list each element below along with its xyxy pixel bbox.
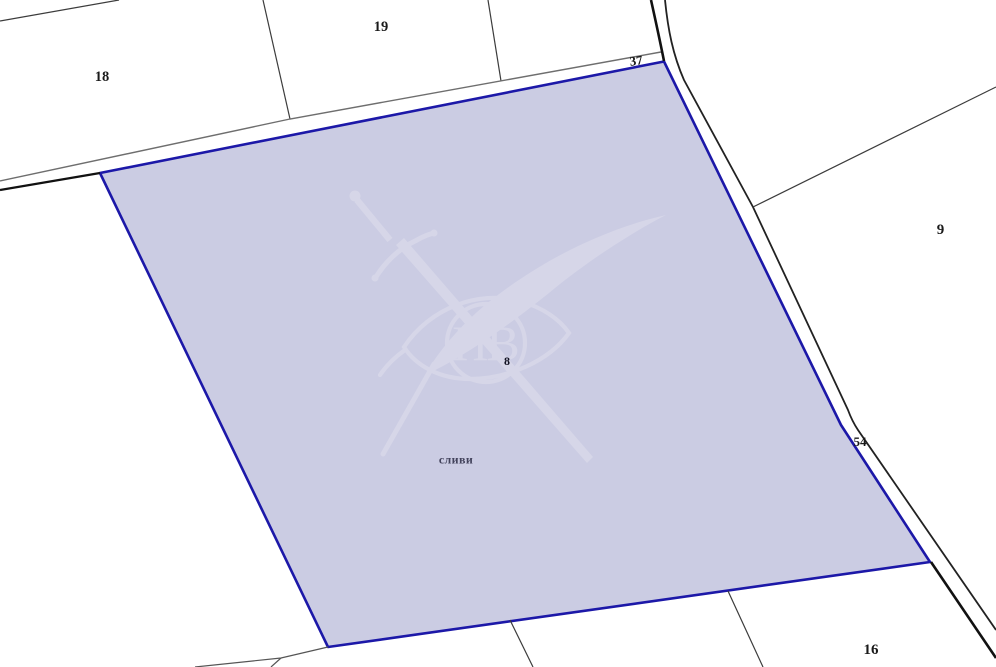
- svg-text:сливи: сливи: [439, 453, 473, 467]
- svg-text:8: 8: [504, 354, 510, 368]
- svg-text:9: 9: [937, 222, 945, 238]
- svg-text:37: 37: [629, 52, 644, 69]
- svg-text:54: 54: [854, 434, 868, 449]
- svg-text:19: 19: [374, 19, 389, 35]
- svg-text:16: 16: [864, 642, 880, 658]
- svg-text:18: 18: [95, 69, 110, 85]
